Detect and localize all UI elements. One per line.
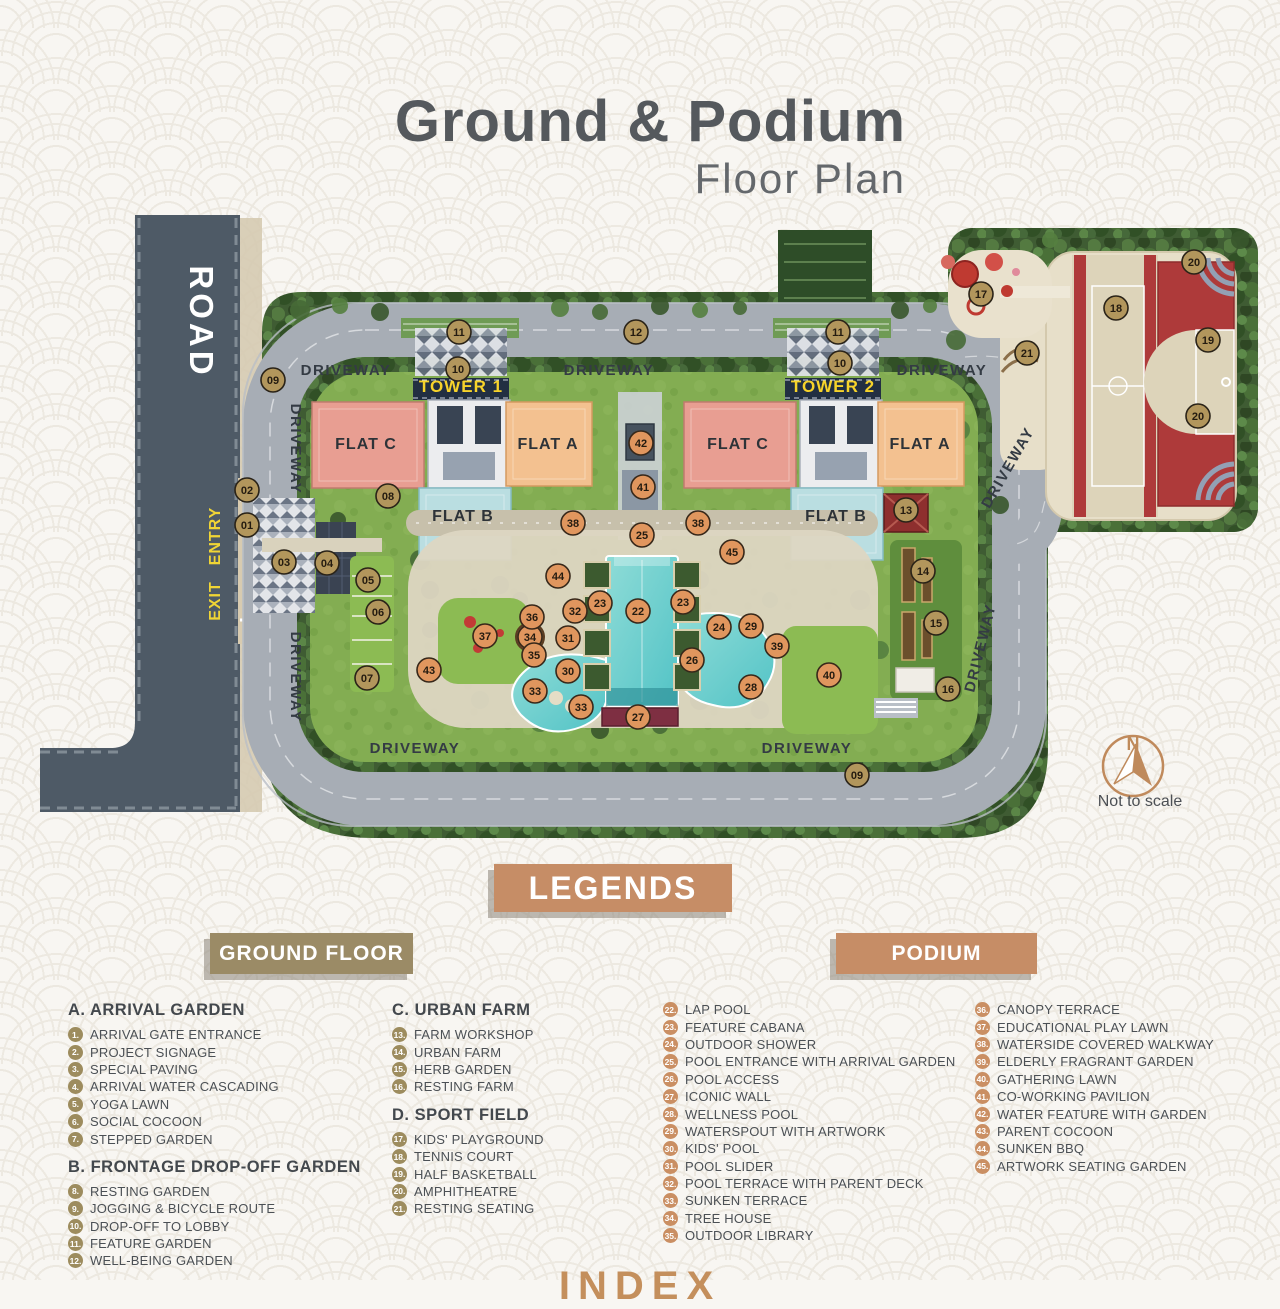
- svg-text:30: 30: [562, 666, 574, 678]
- plan-marker-23: 23: [588, 591, 612, 615]
- legend-item-label: RESTING FARM: [414, 1079, 514, 1094]
- legend-item-label: ICONIC WALL: [685, 1089, 771, 1104]
- legend-item-1: 1.ARRIVAL GATE ENTRANCE: [68, 1026, 398, 1043]
- svg-text:34: 34: [524, 632, 537, 644]
- svg-text:05: 05: [362, 575, 374, 587]
- plan-marker-10: 10: [828, 351, 852, 375]
- plan-marker-25: 25: [630, 523, 654, 547]
- legend-item-number: 22.: [663, 1002, 678, 1017]
- legend-item-number: 31.: [663, 1159, 678, 1174]
- legend-item-label: TREE HOUSE: [685, 1211, 772, 1226]
- legend-item-number: 2.: [68, 1045, 83, 1060]
- legend-item-label: ARRIVAL WATER CASCADING: [90, 1079, 279, 1094]
- plan-marker-42: 42: [629, 431, 653, 455]
- legend-item-42: 42.WATER FEATURE WITH GARDEN: [975, 1105, 1275, 1122]
- legend-item-44: 44.SUNKEN BBQ: [975, 1140, 1275, 1157]
- legend-item-label: POOL ACCESS: [685, 1072, 779, 1087]
- legend-item-label: SOCIAL COCOON: [90, 1114, 202, 1129]
- svg-text:07: 07: [361, 673, 373, 685]
- legend-item-28: 28.WELLNESS POOL: [663, 1105, 973, 1122]
- svg-text:22: 22: [632, 606, 644, 618]
- legend-item-label: OUTDOOR SHOWER: [685, 1037, 816, 1052]
- legend-item-10: 10.DROP-OFF TO LOBBY: [68, 1218, 398, 1235]
- legend-item-number: 25.: [663, 1054, 678, 1069]
- legend-item-9: 9.JOGGING & BICYCLE ROUTE: [68, 1200, 398, 1217]
- legend-item-label: CO-WORKING PAVILION: [997, 1089, 1150, 1104]
- legend-item-number: 10.: [68, 1219, 83, 1234]
- plan-marker-12: 12: [624, 320, 648, 344]
- legend-item-number: 19.: [392, 1167, 407, 1182]
- svg-text:25: 25: [636, 530, 648, 542]
- svg-text:14: 14: [917, 566, 930, 578]
- legend-item-41: 41.CO-WORKING PAVILION: [975, 1088, 1275, 1105]
- legend-item-number: 13.: [392, 1027, 407, 1042]
- legend-item-label: POOL ENTRANCE WITH ARRIVAL GARDEN: [685, 1054, 956, 1069]
- plan-marker-03: 03: [272, 550, 296, 574]
- plan-marker-09: 09: [261, 368, 285, 392]
- legend-item-27: 27.ICONIC WALL: [663, 1088, 973, 1105]
- podium-header-label: PODIUM: [892, 942, 982, 966]
- legend-item-17: 17.KIDS' PLAYGROUND: [392, 1131, 662, 1148]
- legend-item-label: POOL SLIDER: [685, 1159, 773, 1174]
- legend-item-label: WATERSPOUT WITH ARTWORK: [685, 1124, 886, 1139]
- legend-item-number: 42.: [975, 1107, 990, 1122]
- svg-text:38: 38: [567, 518, 579, 530]
- legend-item-number: 7.: [68, 1132, 83, 1147]
- legend-item-24: 24.OUTDOOR SHOWER: [663, 1036, 973, 1053]
- legend-section-heading: B. FRONTAGE DROP-OFF GARDEN: [68, 1158, 398, 1180]
- legend-item-label: HALF BASKETBALL: [414, 1167, 537, 1182]
- legend-item-label: OUTDOOR LIBRARY: [685, 1228, 813, 1243]
- svg-text:20: 20: [1192, 411, 1204, 423]
- legend-item-number: 36.: [975, 1002, 990, 1017]
- legend-item-43: 43.PARENT COCOON: [975, 1123, 1275, 1140]
- plan-marker-36: 36: [520, 605, 544, 629]
- legend-item-number: 35.: [663, 1228, 678, 1243]
- legend-item-label: WELLNESS POOL: [685, 1107, 798, 1122]
- legend-item-label: TENNIS COURT: [414, 1149, 514, 1164]
- legend-item-4: 4.ARRIVAL WATER CASCADING: [68, 1078, 398, 1095]
- svg-text:26: 26: [686, 655, 698, 667]
- svg-text:35: 35: [528, 650, 540, 662]
- legend-item-25: 25.POOL ENTRANCE WITH ARRIVAL GARDEN: [663, 1053, 973, 1070]
- plan-marker-20: 20: [1186, 404, 1210, 428]
- plan-label-drive: DRIVEWAY: [897, 362, 988, 379]
- legend-item-number: 20.: [392, 1184, 407, 1199]
- plan-marker-23: 23: [671, 590, 695, 614]
- svg-text:10: 10: [452, 364, 464, 376]
- legend-item-18: 18.TENNIS COURT: [392, 1148, 662, 1165]
- plan-marker-21: 21: [1015, 341, 1039, 365]
- legend-section-heading: C. URBAN FARM: [392, 1001, 662, 1023]
- plan-marker-05: 05: [356, 568, 380, 592]
- svg-text:33: 33: [529, 686, 541, 698]
- svg-text:13: 13: [900, 505, 912, 517]
- legend-item-label: RESTING SEATING: [414, 1201, 535, 1216]
- legend-column-podium-1: 22.LAP POOL23.FEATURE CABANA24.OUTDOOR S…: [663, 1001, 973, 1244]
- legend-item-14: 14.URBAN FARM: [392, 1043, 662, 1060]
- legend-item-number: 28.: [663, 1107, 678, 1122]
- legend-item-number: 21.: [392, 1201, 407, 1216]
- legend-item-number: 6.: [68, 1114, 83, 1129]
- legend-item-7: 7.STEPPED GARDEN: [68, 1130, 398, 1147]
- legend-column-farm-sport: C. URBAN FARM13.FARM WORKSHOP14.URBAN FA…: [392, 1001, 662, 1218]
- legend-item-label: JOGGING & BICYCLE ROUTE: [90, 1201, 275, 1216]
- svg-text:23: 23: [594, 598, 606, 610]
- legend-item-number: 1.: [68, 1027, 83, 1042]
- legends-header: LEGENDS: [494, 864, 732, 912]
- legend-item-label: ARTWORK SEATING GARDEN: [997, 1159, 1187, 1174]
- legend-item-label: FARM WORKSHOP: [414, 1027, 534, 1042]
- plan-marker-45: 45: [720, 540, 744, 564]
- plan-marker-28: 28: [739, 675, 763, 699]
- plan-label-gate: EXIT: [207, 581, 224, 621]
- legend-item-number: 40.: [975, 1072, 990, 1087]
- svg-text:28: 28: [745, 682, 757, 694]
- plan-marker-31: 31: [556, 626, 580, 650]
- legend-item-8: 8.RESTING GARDEN: [68, 1183, 398, 1200]
- svg-text:40: 40: [823, 670, 835, 682]
- plan-label-flat: FLAT C: [335, 436, 397, 453]
- svg-text:12: 12: [630, 327, 642, 339]
- svg-text:02: 02: [241, 485, 253, 497]
- legend-item-label: ARRIVAL GATE ENTRANCE: [90, 1027, 262, 1042]
- plan-label-drive: DRIVEWAY: [370, 740, 461, 757]
- plan-marker-02: 02: [235, 478, 259, 502]
- svg-text:01: 01: [241, 520, 253, 532]
- legend-item-number: 45.: [975, 1159, 990, 1174]
- plan-marker-17: 17: [969, 282, 993, 306]
- legend-item-label: FEATURE CABANA: [685, 1020, 805, 1035]
- plan-marker-32: 32: [563, 599, 587, 623]
- legend-item-label: KIDS' POOL: [685, 1141, 760, 1156]
- legend-item-39: 39.ELDERLY FRAGRANT GARDEN: [975, 1053, 1275, 1070]
- svg-text:03: 03: [278, 557, 290, 569]
- plan-label-drive: DRIVEWAY: [287, 404, 304, 495]
- legend-item-number: 14.: [392, 1045, 407, 1060]
- legend-item-number: 26.: [663, 1072, 678, 1087]
- svg-text:24: 24: [713, 622, 726, 634]
- legend-item-label: LAP POOL: [685, 1002, 751, 1017]
- svg-text:16: 16: [942, 684, 954, 696]
- svg-text:18: 18: [1110, 303, 1122, 315]
- plan-label-north: N: [1127, 734, 1140, 754]
- plan-marker-40: 40: [817, 663, 841, 687]
- legend-item-label: PROJECT SIGNAGE: [90, 1045, 216, 1060]
- legend-item-number: 27.: [663, 1089, 678, 1104]
- legend-item-33: 33.SUNKEN TERRACE: [663, 1192, 973, 1209]
- plan-marker-39: 39: [765, 634, 789, 658]
- svg-text:39: 39: [771, 641, 783, 653]
- svg-text:17: 17: [975, 289, 987, 301]
- svg-text:27: 27: [632, 712, 644, 724]
- legend-item-31: 31.POOL SLIDER: [663, 1158, 973, 1175]
- index-heading-partial: INDEX: [0, 1264, 1280, 1309]
- legend-item-label: URBAN FARM: [414, 1045, 501, 1060]
- svg-text:09: 09: [267, 375, 279, 387]
- legend-item-label: PARENT COCOON: [997, 1124, 1113, 1139]
- podium-header: PODIUM: [836, 933, 1037, 974]
- plan-marker-33: 33: [523, 679, 547, 703]
- svg-text:04: 04: [321, 558, 334, 570]
- legend-item-number: 39.: [975, 1054, 990, 1069]
- plan-label-drive: DRIVEWAY: [762, 740, 853, 757]
- plan-marker-26: 26: [680, 648, 704, 672]
- legend-item-23: 23.FEATURE CABANA: [663, 1018, 973, 1035]
- legend-item-40: 40.GATHERING LAWN: [975, 1071, 1275, 1088]
- ground-floor-header: GROUND FLOOR: [210, 933, 413, 974]
- legend-item-number: 33.: [663, 1193, 678, 1208]
- plan-marker-41: 41: [631, 475, 655, 499]
- plan-marker-18: 18: [1104, 296, 1128, 320]
- legend-section-heading: D. SPORT FIELD: [392, 1106, 662, 1128]
- legend-item-20: 20.AMPHITHEATRE: [392, 1183, 662, 1200]
- svg-text:31: 31: [562, 633, 574, 645]
- svg-text:21: 21: [1021, 348, 1033, 360]
- legend-item-label: EDUCATIONAL PLAY LAWN: [997, 1020, 1169, 1035]
- plan-marker-19: 19: [1196, 328, 1220, 352]
- legend-item-label: STEPPED GARDEN: [90, 1132, 213, 1147]
- legend-item-number: 16.: [392, 1079, 407, 1094]
- legend-item-38: 38.WATERSIDE COVERED WALKWAY: [975, 1036, 1275, 1053]
- legend-item-5: 5.YOGA LAWN: [68, 1096, 398, 1113]
- legend-item-number: 4.: [68, 1079, 83, 1094]
- legend-item-13: 13.FARM WORKSHOP: [392, 1026, 662, 1043]
- svg-text:20: 20: [1188, 257, 1200, 269]
- plan-marker-10: 10: [446, 357, 470, 381]
- legend-item-label: GATHERING LAWN: [997, 1072, 1117, 1087]
- legend-item-36: 36.CANOPY TERRACE: [975, 1001, 1275, 1018]
- legend-item-label: WATER FEATURE WITH GARDEN: [997, 1107, 1207, 1122]
- legend-item-3: 3.SPECIAL PAVING: [68, 1061, 398, 1078]
- svg-text:38: 38: [692, 518, 704, 530]
- legend-item-number: 41.: [975, 1089, 990, 1104]
- legend-item-label: KIDS' PLAYGROUND: [414, 1132, 544, 1147]
- legend-item-label: ELDERLY FRAGRANT GARDEN: [997, 1054, 1194, 1069]
- legend-item-label: SUNKEN TERRACE: [685, 1193, 807, 1208]
- plan-marker-11: 11: [447, 320, 471, 344]
- legend-item-label: YOGA LAWN: [90, 1097, 169, 1112]
- legend-item-number: 23.: [663, 1020, 678, 1035]
- legend-item-number: 18.: [392, 1149, 407, 1164]
- plan-label-drive: DRIVEWAY: [564, 362, 655, 379]
- plan-label-flat: FLAT A: [517, 436, 578, 453]
- legend-item-number: 5.: [68, 1097, 83, 1112]
- title-sub: Floor Plan: [330, 155, 906, 203]
- svg-text:32: 32: [569, 606, 581, 618]
- svg-text:41: 41: [637, 482, 649, 494]
- legend-item-label: SUNKEN BBQ: [997, 1141, 1084, 1156]
- plan-label-scale: Not to scale: [1098, 793, 1183, 810]
- plan-marker-04: 04: [315, 551, 339, 575]
- legend-item-37: 37.EDUCATIONAL PLAY LAWN: [975, 1018, 1275, 1035]
- plan-marker-38: 38: [561, 511, 585, 535]
- legend-item-2: 2.PROJECT SIGNAGE: [68, 1043, 398, 1060]
- plan-marker-37: 37: [473, 624, 497, 648]
- legend-item-19: 19.HALF BASKETBALL: [392, 1165, 662, 1182]
- legend-column-arrival-frontage: A. ARRIVAL GARDEN1.ARRIVAL GATE ENTRANCE…: [68, 1001, 398, 1270]
- legend-item-11: 11.FEATURE GARDEN: [68, 1235, 398, 1252]
- plan-label-flat: FLAT B: [805, 508, 867, 525]
- legend-item-number: 9.: [68, 1201, 83, 1216]
- legend-item-number: 11.: [68, 1236, 83, 1251]
- legend-item-number: 15.: [392, 1062, 407, 1077]
- legend-item-45: 45.ARTWORK SEATING GARDEN: [975, 1158, 1275, 1175]
- legend-item-34: 34.TREE HOUSE: [663, 1210, 973, 1227]
- legend-item-15: 15.HERB GARDEN: [392, 1061, 662, 1078]
- svg-text:43: 43: [423, 665, 435, 677]
- legend-item-number: 34.: [663, 1211, 678, 1226]
- plan-marker-22: 22: [626, 599, 650, 623]
- svg-text:11: 11: [832, 327, 844, 339]
- legend-item-label: AMPHITHEATRE: [414, 1184, 517, 1199]
- plan-marker-29: 29: [739, 614, 763, 638]
- legend-item-number: 32.: [663, 1176, 678, 1191]
- svg-text:44: 44: [552, 571, 565, 583]
- plan-marker-09: 09: [845, 763, 869, 787]
- plan-marker-11: 11: [826, 320, 850, 344]
- legend-item-30: 30.KIDS' POOL: [663, 1140, 973, 1157]
- legend-item-number: 44.: [975, 1141, 990, 1156]
- legend-item-label: FEATURE GARDEN: [90, 1236, 212, 1251]
- plan-marker-38: 38: [686, 511, 710, 535]
- legend-item-label: DROP-OFF TO LOBBY: [90, 1219, 229, 1234]
- plan-marker-35: 35: [522, 643, 546, 667]
- legend-item-label: WATERSIDE COVERED WALKWAY: [997, 1037, 1214, 1052]
- legend-item-number: 3.: [68, 1062, 83, 1077]
- svg-text:11: 11: [453, 327, 465, 339]
- legend-item-number: 8.: [68, 1184, 83, 1199]
- legend-item-number: 17.: [392, 1132, 407, 1147]
- legend-item-21: 21.RESTING SEATING: [392, 1200, 662, 1217]
- svg-text:06: 06: [372, 607, 384, 619]
- legend-item-6: 6.SOCIAL COCOON: [68, 1113, 398, 1130]
- plan-marker-44: 44: [546, 564, 570, 588]
- legends-header-label: LEGENDS: [529, 870, 698, 907]
- legend-item-number: 37.: [975, 1020, 990, 1035]
- legend-item-29: 29.WATERSPOUT WITH ARTWORK: [663, 1123, 973, 1140]
- svg-text:23: 23: [677, 597, 689, 609]
- legend-item-26: 26.POOL ACCESS: [663, 1071, 973, 1088]
- svg-text:33: 33: [575, 702, 587, 714]
- plan-marker-20: 20: [1182, 250, 1206, 274]
- plan-marker-01: 01: [235, 513, 259, 537]
- plan-label-tower: TOWER 2: [791, 377, 875, 396]
- plan-marker-08: 08: [376, 484, 400, 508]
- legend-item-number: 29.: [663, 1124, 678, 1139]
- plan-marker-15: 15: [924, 611, 948, 635]
- title-main: Ground & Podium: [330, 92, 906, 153]
- legend-column-podium-2: 36.CANOPY TERRACE37.EDUCATIONAL PLAY LAW…: [975, 1001, 1275, 1175]
- plan-marker-27: 27: [626, 705, 650, 729]
- legend-item-label: POOL TERRACE WITH PARENT DECK: [685, 1176, 924, 1191]
- plan-marker-06: 06: [366, 600, 390, 624]
- legend-item-label: CANOPY TERRACE: [997, 1002, 1120, 1017]
- svg-text:15: 15: [930, 618, 942, 630]
- legend-item-label: SPECIAL PAVING: [90, 1062, 198, 1077]
- svg-text:08: 08: [382, 491, 394, 503]
- plan-marker-16: 16: [936, 677, 960, 701]
- legend-item-32: 32.POOL TERRACE WITH PARENT DECK: [663, 1175, 973, 1192]
- svg-text:09: 09: [851, 770, 863, 782]
- plan-marker-14: 14: [911, 559, 935, 583]
- plan-label-flat: FLAT A: [889, 436, 950, 453]
- legend-item-number: 38.: [975, 1037, 990, 1052]
- legend-item-number: 30.: [663, 1141, 678, 1156]
- plan-label-road: ROAD: [183, 265, 220, 378]
- svg-text:10: 10: [834, 358, 846, 370]
- svg-text:42: 42: [635, 438, 647, 450]
- legend-section-heading: A. ARRIVAL GARDEN: [68, 1001, 398, 1023]
- plan-label-gate: ENTRY: [207, 507, 224, 566]
- legend-item-label: RESTING GARDEN: [90, 1184, 210, 1199]
- ground-floor-header-label: GROUND FLOOR: [219, 942, 404, 966]
- legend-item-label: HERB GARDEN: [414, 1062, 512, 1077]
- legend-item-22: 22.LAP POOL: [663, 1001, 973, 1018]
- plan-marker-43: 43: [417, 658, 441, 682]
- legend-item-number: 43.: [975, 1124, 990, 1139]
- plan-marker-24: 24: [707, 615, 731, 639]
- plan-marker-33: 33: [569, 695, 593, 719]
- plan-label-flat: FLAT B: [432, 508, 494, 525]
- page-title: Ground & Podium Floor Plan: [330, 92, 906, 203]
- legend-item-number: 24.: [663, 1037, 678, 1052]
- legend-item-35: 35.OUTDOOR LIBRARY: [663, 1227, 973, 1244]
- plan-marker-30: 30: [556, 659, 580, 683]
- plan-label-flat: FLAT C: [707, 436, 769, 453]
- svg-text:29: 29: [745, 621, 757, 633]
- plan-label-drive: DRIVEWAY: [287, 632, 304, 723]
- plan-marker-13: 13: [894, 498, 918, 522]
- svg-text:37: 37: [479, 631, 491, 643]
- svg-text:19: 19: [1202, 335, 1214, 347]
- plan-marker-07: 07: [355, 666, 379, 690]
- svg-text:45: 45: [726, 547, 738, 559]
- legend-item-16: 16.RESTING FARM: [392, 1078, 662, 1095]
- svg-text:36: 36: [526, 612, 538, 624]
- plan-label-drive: DRIVEWAY: [301, 362, 392, 379]
